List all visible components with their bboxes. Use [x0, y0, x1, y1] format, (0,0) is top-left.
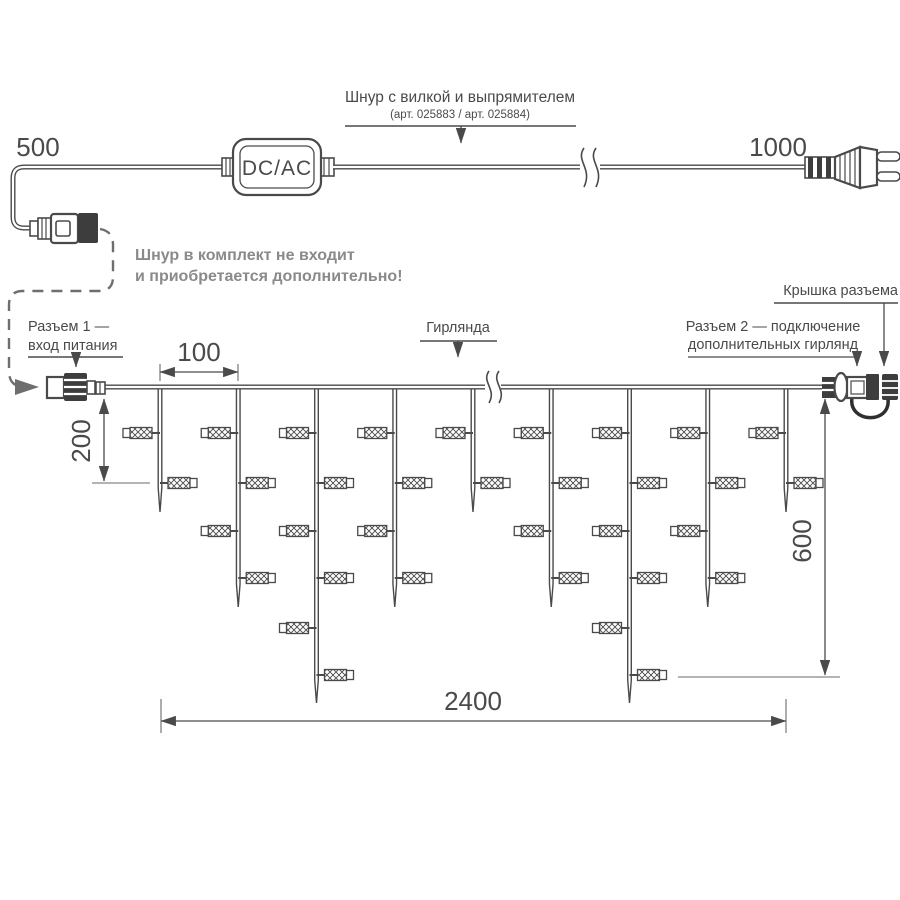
led-bulb: [160, 478, 197, 489]
note-line2: и приобретается дополнительно!: [135, 268, 403, 285]
led-bulb: [514, 526, 551, 537]
drop-wire: [706, 389, 710, 607]
led-bulb: [395, 573, 432, 584]
cap-label: Крышка разъема: [783, 283, 899, 299]
icicle-drop: [671, 389, 745, 607]
drop-wire: [471, 389, 475, 512]
led-bulb: [317, 670, 354, 681]
led-bulb: [317, 478, 354, 489]
led-bulb: [593, 526, 630, 537]
icicle-drop: [749, 389, 823, 512]
diagram-page: 500 DC/AC: [0, 0, 900, 900]
garland-connector1: [47, 373, 105, 401]
led-bulb: [671, 526, 708, 537]
led-bulb: [280, 428, 317, 439]
connector1-label-line1: Разъем 1 —: [28, 319, 110, 335]
icicle-drop: [201, 389, 275, 607]
led-bulb: [514, 428, 551, 439]
garland-assembly: Разъем 1 — вход питания Гирлянда Крышка …: [28, 283, 899, 733]
dim-200-value: 200: [66, 419, 96, 462]
dc-ac-adapter: DC/AC: [222, 139, 334, 195]
led-bulb: [708, 573, 745, 584]
icicle-drop: [123, 389, 197, 512]
icicle-drop: [358, 389, 432, 607]
icicle-drop: [593, 389, 667, 703]
led-bulb: [238, 478, 275, 489]
cap-tether: [852, 398, 888, 418]
wire-break-icon: [487, 371, 492, 403]
dim-100-value: 100: [177, 337, 220, 367]
led-bulb: [593, 428, 630, 439]
icicle-drop: [280, 389, 354, 703]
led-bulb: [593, 623, 630, 634]
garland-label-block: Гирлянда: [420, 320, 497, 357]
connector2-label-line1: Разъем 2 — подключение: [686, 319, 861, 335]
led-bulb: [238, 573, 275, 584]
connector1-label-line2: вход питания: [28, 338, 117, 354]
drop-wire: [236, 389, 240, 607]
led-bulb: [630, 573, 667, 584]
led-bulb: [123, 428, 160, 439]
led-bulb: [551, 478, 588, 489]
cable-break-icon: [593, 148, 598, 187]
dashed-connection-path: [9, 229, 113, 387]
cord-connector: [30, 213, 98, 243]
led-bulb: [395, 478, 432, 489]
drop-wire: [393, 389, 397, 607]
led-bulb: [630, 670, 667, 681]
led-bulb: [358, 526, 395, 537]
led-bulb: [630, 478, 667, 489]
cord-right-cable: [333, 148, 807, 187]
led-bulb: [436, 428, 473, 439]
icicle-drop: [436, 389, 510, 512]
cord-title-block: Шнур с вилкой и выпрямителем (арт. 02588…: [345, 89, 576, 143]
garland-diagram-canvas: 500 DC/AC: [0, 0, 900, 900]
led-bulb: [280, 526, 317, 537]
drop-wire: [158, 389, 162, 512]
drop-wire: [549, 389, 553, 607]
drop-wire: [315, 389, 319, 703]
led-bulb: [708, 478, 745, 489]
cable-break-icon: [581, 148, 586, 187]
led-bulb: [358, 428, 395, 439]
adapter-label: DC/AC: [242, 157, 312, 180]
cord-subtitle: (арт. 025883 / арт. 025884): [390, 109, 530, 121]
dim-2400-value: 2400: [444, 686, 502, 716]
led-bulb: [551, 573, 588, 584]
cord-dim-500: 500: [16, 132, 59, 162]
cord-dim-1000: 1000: [749, 132, 807, 162]
connector-cap: [882, 374, 898, 400]
drop-wire: [628, 389, 632, 703]
cord-title: Шнур с вилкой и выпрямителем: [345, 89, 575, 106]
dim-drop-200: 200: [66, 399, 150, 483]
dim-height-600: 600: [678, 399, 840, 677]
drop-wire: [784, 389, 788, 512]
connector1-label-block: Разъем 1 — вход питания: [28, 319, 123, 367]
garland-main-wire: [100, 371, 823, 403]
connector2-label-block: Разъем 2 — подключение дополнительных ги…: [686, 319, 861, 366]
led-bulb: [201, 428, 238, 439]
led-bulb: [201, 526, 238, 537]
plug-prong: [877, 152, 900, 161]
led-bulb: [786, 478, 823, 489]
garland-connector2: [822, 373, 898, 418]
led-bulb: [749, 428, 786, 439]
plug-prong: [877, 172, 900, 181]
connector2-label-line2: дополнительных гирлянд: [688, 337, 859, 353]
led-bulb: [473, 478, 510, 489]
led-bulb: [317, 573, 354, 584]
note-line1: Шнур в комплект не входит: [135, 247, 355, 264]
led-bulb: [671, 428, 708, 439]
wire-break-icon: [497, 371, 502, 403]
mains-plug: [805, 147, 900, 188]
icicle-drops-layer: [123, 389, 823, 703]
dim-spacing-100: 100: [160, 337, 238, 381]
dim-600-value: 600: [787, 519, 817, 562]
icicle-drop: [514, 389, 588, 607]
dim-length-2400: 2400: [161, 686, 786, 733]
garland-label: Гирлянда: [426, 320, 490, 336]
led-bulb: [280, 623, 317, 634]
note-block: Шнур в комплект не входит и приобретаетс…: [135, 247, 403, 285]
